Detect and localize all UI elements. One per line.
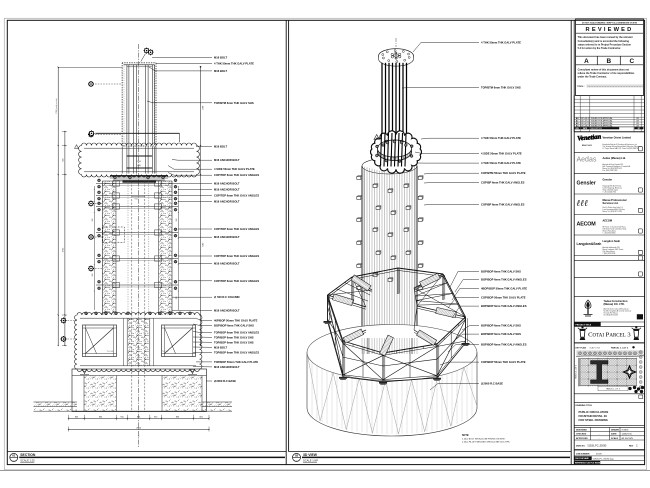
svg-text:Langdon Seah: Langdon Seah [603, 239, 621, 243]
svg-text:DO NOT SCALE DRAWING. VERIFY A: DO NOT SCALE DRAWING. VERIFY ALL DIMENSI… [582, 21, 638, 24]
svg-text:Tel: (853) 2875 3063: Tel: (853) 2875 3063 [604, 314, 618, 316]
svg-text:(Macau) CO. LTD.: (Macau) CO. LTD. [604, 302, 625, 306]
svg-text:AECOM: AECOM [603, 218, 612, 222]
svg-text:COTAI PARCEL 3: COTAI PARCEL 3 [588, 331, 631, 338]
svg-text:ℓℓℓ: ℓℓℓ [577, 198, 589, 208]
svg-text:M16 ANCHOR BOLT: M16 ANCHOR BOLT [214, 308, 240, 312]
svg-text:500: 500 [176, 219, 178, 222]
svg-text:Services Ltd.: Services Ltd. [603, 201, 619, 205]
svg-text:DESIGNED: DESIGNED [576, 430, 587, 432]
svg-text:2864: 2864 [136, 428, 142, 430]
svg-text:NOTE:: NOTE: [462, 435, 469, 437]
svg-text:This document has been revised: This document has been revised by the re… [578, 36, 633, 39]
svg-text:A: A [584, 58, 589, 65]
svg-text:∅ 500 R.C COLUMN: ∅ 500 R.C COLUMN [214, 295, 240, 299]
svg-text:Date :: Date : [578, 84, 586, 88]
svg-text:Macau Tel: (853) 2833 1055: Macau Tel: (853) 2833 1055 [603, 168, 622, 170]
svg-text:M A C A U: M A C A U [582, 144, 592, 147]
svg-text:∅2000 R.C BASE: ∅2000 R.C BASE [481, 381, 503, 385]
svg-text:M16 ANCHOR BOLT: M16 ANCHOR BOLT [214, 235, 240, 239]
svg-text:780: 780 [176, 297, 178, 300]
svg-text:REVIEWED: REVIEWED [586, 27, 634, 33]
svg-text:DATE: DATE [611, 433, 617, 436]
svg-text:Fax: (853) 2833 1305: Fax: (853) 2833 1305 [603, 170, 618, 172]
svg-text:DWG NO.: DWG NO. [576, 446, 586, 448]
svg-text:B: B [606, 58, 611, 65]
svg-text:DESCRIPTION: DESCRIPTION [591, 128, 603, 130]
svg-text:Tokyo 106-0032 Japan: Tokyo 106-0032 Japan [603, 190, 619, 192]
svg-text:under the Trade Contract.: under the Trade Contract. [578, 75, 608, 78]
svg-text:PARCEL 1, LOT 1: PARCEL 1, LOT 1 [574, 365, 577, 379]
svg-text:BOP/BOP 6mm THK GALV ANGLES: BOP/BOP 6mm THK GALV ANGLES [481, 342, 527, 346]
svg-text:Aedas: Aedas [577, 157, 597, 164]
svg-text:2. ALL FILLET WELDED SHOULD BE: 2. ALL FILLET WELDED SHOULD BE 5mm THK. [462, 441, 510, 444]
svg-text:relieve the Trade Contractor o: relieve the Trade Contractor of its resp… [578, 72, 635, 75]
svg-text:-: - [13, 459, 14, 462]
svg-text:PUBLIC CIRCULATION: PUBLIC CIRCULATION [579, 410, 609, 414]
svg-text:AECOM: AECOM [577, 222, 597, 228]
svg-text:T + 81.3.6406.7900: T + 81.3.6406.7900 [603, 192, 617, 194]
svg-text:T (853) 2833 3236: T (853) 2833 3236 [603, 253, 616, 255]
svg-text:"T-6, %&": "T-6, %&" [107, 351, 114, 353]
svg-text:SCALE 1:25: SCALE 1:25 [20, 459, 35, 463]
svg-text:M16 BOLT: M16 BOLT [214, 345, 227, 349]
svg-text:BOP/BOP 6mm THK GALV SHS: BOP/BOP 6mm THK GALV SHS [214, 323, 254, 327]
svg-text:DRAWN: DRAWN [611, 429, 619, 432]
svg-text:COP/TOP 6mm THK GALV ANGLES: COP/TOP 6mm THK GALV ANGLES [214, 227, 259, 231]
svg-text:∅2000 R.C BASE: ∅2000 R.C BASE [214, 379, 236, 383]
svg-text:M16 ANCHOR BOLT: M16 ANCHOR BOLT [214, 182, 240, 186]
svg-text:COP/BOP 50mm THK GALV PLATE: COP/BOP 50mm THK GALV PLATE [481, 360, 526, 364]
svg-text:5.4 for action by the Trade Co: 5.4 for action by the Trade Contractor. [578, 47, 622, 50]
svg-text:4 SIDE 50mm THK GALV PLATE: 4 SIDE 50mm THK GALV PLATE [481, 152, 522, 156]
svg-text:BOP/BOP 6mm THK GALV SHS: BOP/BOP 6mm THK GALV SHS [481, 323, 521, 327]
svg-text:-: - [296, 459, 297, 462]
svg-text:Aedas (Macau) Ltd.: Aedas (Macau) Ltd. [603, 156, 627, 160]
svg-text:31928: 31928 [596, 454, 602, 456]
svg-text:4BOP/BOP 50mm THK GALV PLATE: 4BOP/BOP 50mm THK GALV PLATE [481, 286, 527, 290]
svg-text:COP/TOP 6mm THK GALV ANGLES: COP/TOP 6mm THK GALV ANGLES [214, 173, 259, 177]
svg-text:4 THK 50mm THK GALV PLATE: 4 THK 50mm THK GALV PLATE [481, 41, 521, 45]
svg-text:"T1&": "T1&" [134, 199, 139, 201]
svg-text:2-M-4: 2-M-4 [137, 161, 141, 163]
svg-text:CHECKED: CHECKED [576, 434, 587, 436]
svg-text:4 SIDE 50mm THK GALV PLATE: 4 SIDE 50mm THK GALV PLATE [214, 167, 255, 171]
svg-text:PARCEL 1, LOT 2: PARCEL 1, LOT 2 [611, 346, 629, 349]
svg-text:CAD FILE NAME: CAD FILE NAME [575, 457, 590, 460]
svg-text:BOP/BOP 6mm THK GALV SHS: BOP/BOP 6mm THK GALV SHS [481, 332, 521, 336]
svg-text:C: C [629, 58, 634, 65]
svg-text:BOP/BOP 6mm THK GALV ANGLES: BOP/BOP 6mm THK GALV ANGLES [481, 304, 527, 308]
svg-text:1. ALL BOLT SHOULD BE FIXING O: 1. ALL BOLT SHOULD BE FIXING ON SITE. [462, 437, 506, 440]
svg-text:APPROVED: APPROVED [576, 437, 588, 440]
svg-text:M16 ANCHOR BOLT: M16 ANCHOR BOLT [214, 261, 240, 265]
svg-text:TOP/BTM 6mm THK GALV SHS: TOP/BTM 6mm THK GALV SHS [214, 101, 254, 105]
svg-text:COP/BP 6mm THK GALV ANGLES: COP/BP 6mm THK GALV ANGLES [481, 202, 525, 206]
svg-text:REFERENCE CAD FILE NAME: REFERENCE CAD FILE NAME [575, 462, 601, 465]
svg-text:M16 ANCHOR BOLT: M16 ANCHOR BOLT [214, 158, 240, 162]
svg-text:01: 01 [12, 453, 16, 457]
svg-text:FOUNTAIN DETAIL 29: FOUNTAIN DETAIL 29 [579, 414, 608, 418]
svg-text:4 THK 50mm THK GALV PLATE: 4 THK 50mm THK GALV PLATE [481, 161, 521, 165]
svg-text:PARCEL 1, LOT 3: PARCEL 1, LOT 3 [606, 388, 620, 391]
svg-text:M16 ANCHOR BOLT: M16 ANCHOR BOLT [214, 188, 240, 192]
svg-text:BOP/BOP 6mm THK GALV ANGLES: BOP/BOP 6mm THK GALV ANGLES [481, 278, 527, 282]
svg-text:TOP/BOP 6mm THK GALV ANGLES: TOP/BOP 6mm THK GALV ANGLES [214, 330, 259, 334]
svg-text:SCALE 1:NP: SCALE 1:NP [303, 459, 318, 463]
svg-text:M16 BOLT: M16 BOLT [214, 69, 227, 73]
svg-text:JOB NUMBER: JOB NUMBER [576, 454, 590, 456]
svg-text:4 THK 50mm THK GALV PLATE: 4 THK 50mm THK GALV PLATE [214, 62, 254, 66]
svg-text:M16 BOLT: M16 BOLT [214, 144, 227, 148]
svg-text:status referred to in Projec: status referred to in Project Procedure … [578, 43, 632, 46]
svg-text:M16 ANCHOR BOLT: M16 ANCHOR BOLT [214, 200, 240, 204]
svg-text:500: 500 [92, 219, 94, 222]
svg-text:DRAWING TITLE: DRAWING TITLE [576, 404, 593, 407]
svg-text:TOP/BOP 6mm THK GALV SHS: TOP/BOP 6mm THK GALV SHS [214, 340, 254, 344]
svg-text:40P/BOP 50mm THK GALV PLATE: 40P/BOP 50mm THK GALV PLATE [214, 318, 258, 322]
svg-text:TOP/BOP 6mm THK GALV SHS: TOP/BOP 6mm THK GALV SHS [214, 335, 254, 339]
svg-text:T + 852.3922.9000: T + 852.3922.9000 [603, 233, 616, 235]
svg-text:REV: REV [629, 446, 634, 448]
svg-text:4 THK 50mm THK GALV PLATE: 4 THK 50mm THK GALV PLATE [481, 136, 521, 140]
svg-text:COP/BTM 50mm THK GALV PLATE: COP/BTM 50mm THK GALV PLATE [481, 171, 526, 175]
svg-text:M16 BOLT: M16 BOLT [214, 56, 227, 60]
svg-text:Gensler: Gensler [577, 181, 596, 187]
svg-text:1788 (verify on site): 1788 (verify on site) [55, 98, 58, 114]
svg-text:KEY PLAN: KEY PLAN [576, 346, 587, 349]
svg-text:AS SHOWN: AS SHOWN [622, 437, 634, 440]
svg-text:SCALE: SCALE [611, 437, 619, 440]
svg-text:Venetian Orient Limited: Venetian Orient Limited [603, 136, 632, 140]
svg-text:COP/BOP 50mm THK GALV PLATE: COP/BOP 50mm THK GALV PLATE [481, 296, 526, 300]
svg-text:Gensler: Gensler [603, 177, 613, 181]
svg-text:TOP/BOP 50mm THK GALV PLATE: TOP/BOP 50mm THK GALV PLATE [214, 360, 258, 364]
svg-text:500: 500 [92, 274, 94, 277]
svg-text:3D VIEW: 3D VIEW [303, 453, 318, 457]
svg-text:51928_PC_S5090: 51928_PC_S5090 [588, 446, 607, 448]
svg-text:TOP/BTM 6mm THK GALV SHS: TOP/BTM 6mm THK GALV SHS [481, 86, 521, 90]
svg-text:14/AUG/15: 14/AUG/15 [622, 433, 633, 436]
svg-text:COP/TOP 6mm THK GALV ANGLES: COP/TOP 6mm THK GALV ANGLES [214, 279, 259, 283]
svg-text:M16 ANCHOR BOLT: M16 ANCHOR BOLT [214, 365, 240, 369]
svg-text:COP/TOP 6mm THK GALV ANGLES: COP/TOP 6mm THK GALV ANGLES [214, 194, 259, 198]
svg-text:COP/TOP 6mm THK GALV ANGLES: COP/TOP 6mm THK GALV ANGLES [214, 254, 259, 258]
svg-text:BOP/BOP 6mm THK GALV SHS: BOP/BOP 6mm THK GALV SHS [481, 270, 521, 274]
svg-text:SECTION: SECTION [20, 453, 36, 457]
svg-text:51928_PC_S5090.dwg: 51928_PC_S5090.dwg [593, 458, 614, 460]
svg-text:Langdon&Seah: Langdon&Seah [577, 242, 602, 246]
svg-text:COP/BP 6mm THK GALV ANGLES: COP/BP 6mm THK GALV ANGLES [481, 181, 525, 185]
svg-text:S.WND: S.WND [622, 430, 629, 432]
svg-text:FOR STEEL DRAWING: FOR STEEL DRAWING [579, 418, 608, 422]
svg-text:02: 02 [295, 453, 299, 457]
svg-text:"T-6, %&": "T-6, %&" [162, 351, 169, 353]
svg-text:Macau Tel: (853) 2871 1989: Macau Tel: (853) 2871 1989 [603, 211, 622, 213]
svg-text:TOP/BOP 6mm THK GALV ANGLES: TOP/BOP 6mm THK GALV ANGLES [214, 350, 259, 354]
